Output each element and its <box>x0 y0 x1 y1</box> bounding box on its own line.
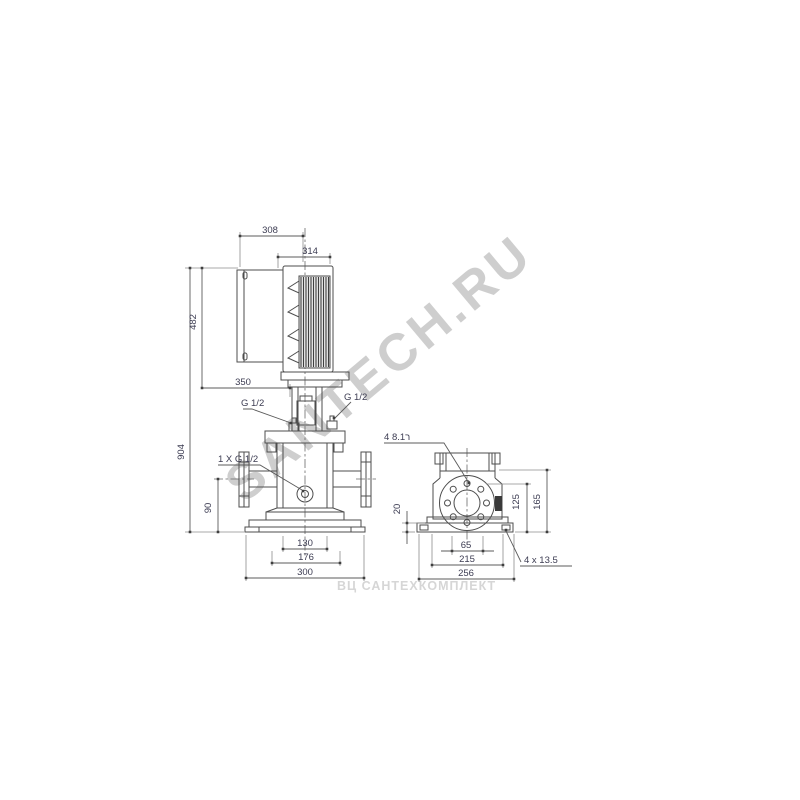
dim-350-label: 350 <box>235 377 251 388</box>
dim-flange-holes-label: 4 ר8.1 <box>384 432 410 443</box>
discharge-flange <box>333 452 371 507</box>
dim-215-label: 215 <box>459 554 475 565</box>
dim-308-label: 308 <box>262 225 278 236</box>
watermark-diagonal: SANTECH.RU <box>215 224 544 513</box>
watermark-bottom: ВЦ САНТЕХКОМПЛЕКТ <box>337 579 496 593</box>
dim-314-label: 314 <box>302 246 318 257</box>
dim-176-label: 176 <box>298 552 314 563</box>
dim-base-holes-label: 4 x 13.5 <box>524 555 558 566</box>
dim-20-label: 20 <box>392 504 403 515</box>
base-bolt-slot-left <box>420 525 428 530</box>
dim-g-half-right-label: G 1/2 <box>344 392 367 403</box>
dim-drain-label: 1 X G 1/2 <box>218 454 258 465</box>
dim-904-label: 904 <box>176 444 187 460</box>
dim-300-label: 300 <box>297 567 313 578</box>
leader-flange-holes <box>384 443 469 483</box>
dim-165-label: 165 <box>532 494 543 510</box>
dim-g-half-left-label: G 1/2 <box>241 398 264 409</box>
dim-482-label: 482 <box>188 314 199 330</box>
side-dimensions: 4 ר8.1 20 125 165 65 215 256 4 x 13.5 <box>384 432 572 582</box>
dim-65-label: 65 <box>461 540 472 551</box>
dim-256-label: 256 <box>458 568 474 579</box>
pump-dimension-drawing: SANTECH.RU <box>0 0 800 800</box>
side-body <box>417 448 513 545</box>
dim-90-label: 90 <box>203 503 214 514</box>
motor-assembly <box>237 266 349 387</box>
dim-125-label: 125 <box>511 494 522 510</box>
side-view: 4 ר8.1 20 125 165 65 215 256 4 x 13.5 <box>384 432 572 582</box>
flange-edge <box>495 496 502 511</box>
motor-clamp-lugs <box>288 281 299 363</box>
dim-130-label: 130 <box>297 538 313 549</box>
leader-base-holes <box>506 531 521 562</box>
